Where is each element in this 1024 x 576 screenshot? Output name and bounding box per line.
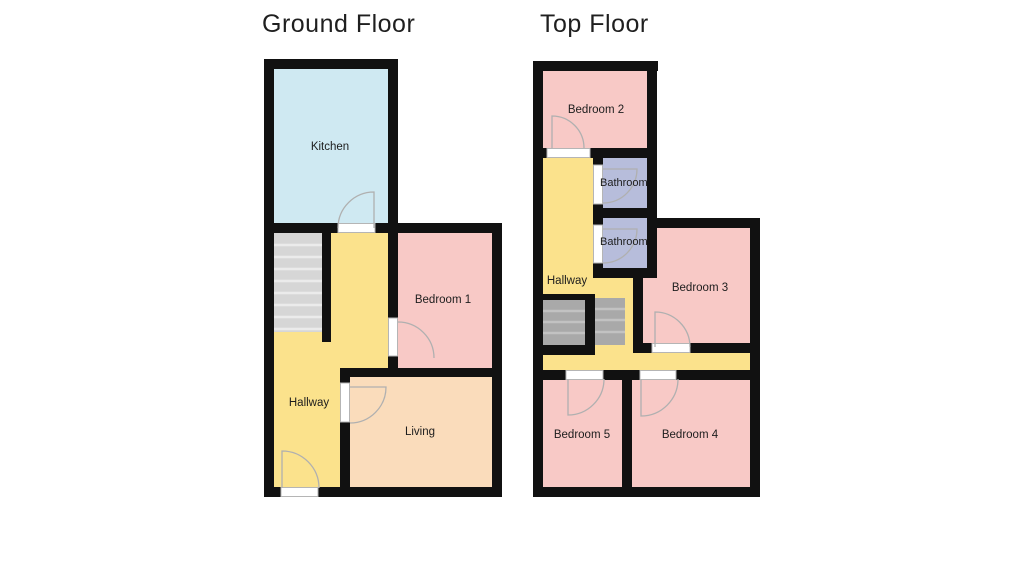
hallway-ground-label: Hallway: [289, 397, 329, 409]
wall-segment: [622, 370, 632, 497]
wall-segment: [633, 343, 750, 353]
wall-segment: [340, 368, 502, 377]
wall-segment: [322, 223, 331, 342]
wall-segment: [750, 218, 760, 497]
wall-segment: [533, 61, 543, 497]
hallway-top-label: Hallway: [547, 275, 587, 287]
bedroom2-label: Bedroom 2: [568, 104, 624, 116]
ground-floor-title: Ground Floor: [262, 10, 415, 39]
wall-segment: [633, 268, 643, 353]
wall-segment: [492, 223, 502, 497]
bedroom3-label: Bedroom 3: [672, 282, 728, 294]
wall-segment: [593, 208, 647, 218]
living-label: Living: [405, 426, 435, 438]
wall-segment: [533, 61, 658, 71]
bathroom-lower-label: Bathroom: [600, 236, 649, 250]
wall-segment: [264, 59, 274, 497]
top-floor-title: Top Floor: [540, 10, 649, 39]
kitchen-door-jamb: [338, 224, 375, 233]
front-door-jamb: [281, 488, 318, 497]
bedroom4-door-jamb: [640, 371, 676, 380]
wall-segment: [264, 223, 502, 233]
kitchen-label: Kitchen: [311, 141, 349, 153]
floor-plans-svg: [0, 0, 1024, 576]
wall-segment: [533, 487, 760, 497]
bedroom4-label: Bedroom 4: [662, 429, 718, 441]
bedroom5-label: Bedroom 5: [554, 429, 610, 441]
bedroom1-label: Bedroom 1: [415, 294, 471, 306]
wall-segment: [647, 218, 760, 228]
bathroom-upper-label: Bathroom: [600, 177, 649, 191]
wall-segment: [533, 345, 595, 355]
floor-plan-canvas: Ground Floor Top Floor Kitchen Bedroom 1…: [0, 0, 1024, 576]
living-door-jamb: [341, 383, 350, 422]
bedroom1-door-jamb: [389, 318, 398, 356]
wall-segment: [593, 268, 657, 278]
bedroom5-door-jamb: [566, 371, 603, 380]
stairs-top-right-run: [595, 298, 625, 345]
bedroom3-door-jamb: [652, 344, 690, 353]
wall-segment: [264, 59, 398, 69]
bedroom2-door-jamb: [547, 149, 590, 158]
ground-floor-plan: [264, 59, 502, 497]
